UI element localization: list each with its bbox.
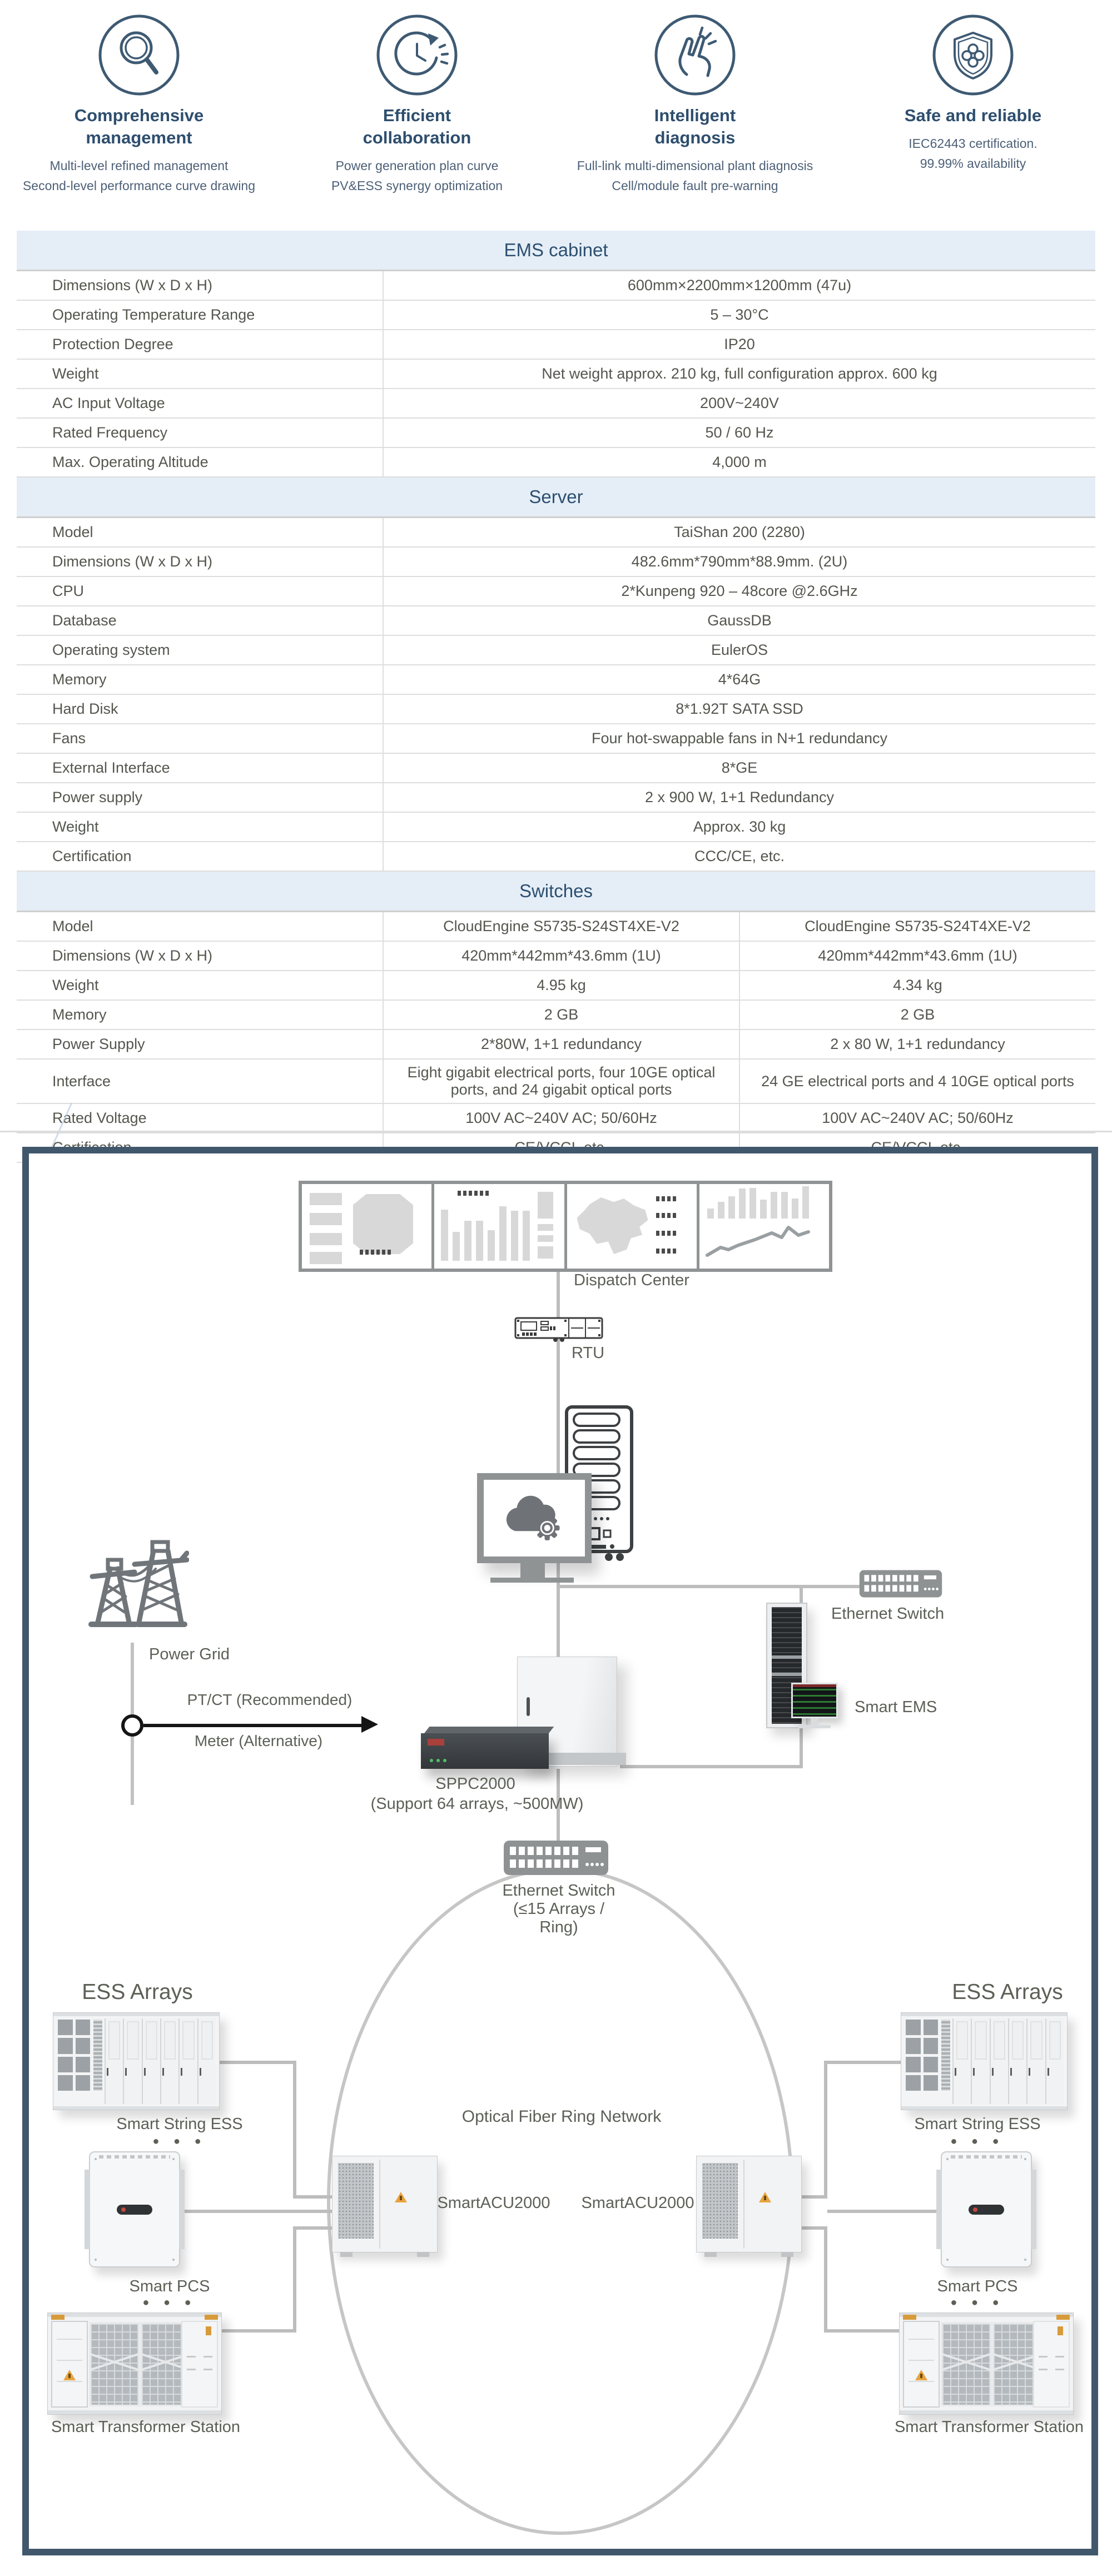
spec-value: 8*1.92T SATA SSD bbox=[384, 695, 1095, 723]
ellipsis-right-1: ● ● ● bbox=[894, 2135, 1061, 2148]
feature-subtitle: Power generation plan curvePV&ESS synerg… bbox=[331, 156, 503, 196]
ess-arrays-right-heading: ESS Arrays bbox=[924, 1983, 1091, 2001]
spec-row: Hard Disk8*1.92T SATA SSD bbox=[17, 695, 1095, 724]
spec-label: Hard Disk bbox=[17, 695, 384, 723]
spec-label: Operating Temperature Range bbox=[17, 301, 384, 329]
meter-arrow-line bbox=[143, 1724, 364, 1727]
spec-row: Rated Frequency50 / 60 Hz bbox=[17, 419, 1095, 448]
spec-value: 4.95 kg bbox=[384, 971, 739, 999]
spec-value: CloudEngine S5735-S24T4XE-V2 bbox=[739, 912, 1095, 941]
spec-row: WeightNet weight approx. 210 kg, full co… bbox=[17, 360, 1095, 389]
spec-value: 420mm*442mm*43.6mm (1U) bbox=[384, 942, 739, 970]
feature-title: Safe and reliable bbox=[905, 105, 1041, 127]
spec-row: DatabaseGaussDB bbox=[17, 606, 1095, 636]
right-trunk-lower bbox=[824, 2230, 827, 2333]
spec-value: Eight gigabit electrical ports, four 10G… bbox=[384, 1060, 739, 1103]
spec-label: Model bbox=[17, 518, 384, 546]
wall-panel-trend bbox=[697, 1184, 829, 1269]
feature-efficient-collaboration: Efficientcollaboration Power generation … bbox=[278, 13, 556, 196]
spec-value: 2 GB bbox=[739, 1001, 1095, 1029]
spec-value: Four hot-swappable fans in N+1 redundanc… bbox=[384, 724, 1095, 753]
table-title-switches: Switches bbox=[17, 872, 1095, 912]
smart-string-ess-left-label: Smart String ESS bbox=[96, 2115, 263, 2134]
spec-label: Interface bbox=[17, 1060, 384, 1103]
ethernet-switch-top-label: Ethernet Switch bbox=[831, 1605, 970, 1623]
smart-pcs-left-label: Smart PCS bbox=[86, 2277, 253, 2296]
topology-diagram: Dispatch Center RTU bbox=[22, 1147, 1098, 2555]
ethernet-switch-icon bbox=[859, 1569, 942, 1598]
ring-ethernet-switch-icon bbox=[503, 1840, 609, 1876]
spec-value: 100V AC~240V AC; 50/60Hz bbox=[384, 1104, 739, 1132]
spec-row: ModelTaiShan 200 (2280) bbox=[17, 518, 1095, 548]
spec-value: 2*80W, 1+1 redundancy bbox=[384, 1030, 739, 1058]
spec-value: 420mm*442mm*43.6mm (1U) bbox=[739, 942, 1095, 970]
management-client-monitor-icon bbox=[477, 1473, 592, 1563]
spec-label: Weight bbox=[17, 813, 384, 841]
acu-right-feed-top bbox=[798, 2195, 827, 2199]
cloud-gear-icon bbox=[498, 1488, 570, 1549]
spec-row: Memory2 GB2 GB bbox=[17, 1001, 1095, 1030]
sppc2000-sublabel: (Support 64 arrays, ~500MW) bbox=[294, 1795, 661, 1813]
ess-right-link bbox=[824, 2061, 902, 2064]
spec-label: Memory bbox=[17, 1001, 384, 1029]
spec-label: Power supply bbox=[17, 783, 384, 812]
feature-subtitle: Multi-level refined managementSecond-lev… bbox=[23, 156, 255, 196]
spec-row: ModelCloudEngine S5735-S24ST4XE-V2CloudE… bbox=[17, 912, 1095, 942]
line-ems-to-sppc bbox=[620, 1765, 803, 1768]
spec-label: Max. Operating Altitude bbox=[17, 448, 384, 476]
spec-row: Memory4*64G bbox=[17, 665, 1095, 695]
smartacu2000-left-label: SmartACU2000 bbox=[427, 2194, 560, 2212]
sppc2000-label: SPPC2000 bbox=[392, 1775, 559, 1793]
spec-row: CPU2*Kunpeng 920 – 48core @2.6GHz bbox=[17, 577, 1095, 606]
spec-label: Fans bbox=[17, 724, 384, 753]
smart-string-ess-right-icon bbox=[901, 2012, 1068, 2110]
spec-row: Rated Voltage100V AC~240V AC; 50/60Hz100… bbox=[17, 1104, 1095, 1133]
smartacu2000-left-icon bbox=[332, 2156, 438, 2252]
spec-value: 4,000 m bbox=[384, 448, 1095, 476]
spec-label: Rated Voltage bbox=[17, 1104, 384, 1132]
transformer-right-label: Smart Transformer Station bbox=[878, 2418, 1100, 2436]
smart-ems-label: Smart EMS bbox=[855, 1698, 937, 1717]
spec-value: IP20 bbox=[384, 330, 1095, 359]
spec-value: 50 / 60 Hz bbox=[384, 419, 1095, 447]
spec-value: TaiShan 200 (2280) bbox=[384, 518, 1095, 546]
spec-value: 2 x 80 W, 1+1 redundancy bbox=[739, 1030, 1095, 1058]
spec-label: Certification bbox=[17, 842, 384, 871]
spec-value: 100V AC~240V AC; 50/60Hz bbox=[739, 1104, 1095, 1132]
feature-row: Comprehensivemanagement Multi-level refi… bbox=[0, 13, 1112, 196]
spec-label: Weight bbox=[17, 360, 384, 388]
acu-left-feed-top bbox=[293, 2195, 335, 2199]
feature-title: Efficientcollaboration bbox=[363, 105, 471, 149]
ring-switch-label: Ethernet Switch (≤15 Arrays / Ring) bbox=[473, 1882, 645, 1937]
ess-left-link bbox=[219, 2061, 296, 2064]
left-trunk-lower bbox=[293, 2230, 296, 2333]
meter-label: Meter (Alternative) bbox=[153, 1732, 364, 1750]
smart-ems-monitor-icon bbox=[791, 1683, 838, 1718]
section-separator bbox=[0, 1131, 1112, 1132]
right-trunk-upper bbox=[824, 2061, 827, 2199]
spec-row: FansFour hot-swappable fans in N+1 redun… bbox=[17, 724, 1095, 754]
spec-row: Max. Operating Altitude4,000 m bbox=[17, 448, 1095, 478]
line-to-ethernet-switch bbox=[558, 1585, 863, 1588]
smart-transformer-station-right-icon bbox=[899, 2313, 1074, 2415]
spec-value: 600mm×2200mm×1200mm (47u) bbox=[384, 271, 1095, 300]
spec-value: Approx. 30 kg bbox=[384, 813, 1095, 841]
spec-tables: EMS cabinet Dimensions (W x D x H)600mm×… bbox=[17, 231, 1095, 1163]
sppc2000-server-icon bbox=[421, 1733, 549, 1769]
ellipsis-left-2: ● ● ● bbox=[86, 2296, 253, 2309]
spec-label: Model bbox=[17, 912, 384, 941]
page: Comprehensivemanagement Multi-level refi… bbox=[0, 0, 1112, 2576]
rtu-label: RTU bbox=[572, 1344, 604, 1362]
transformer-left-label: Smart Transformer Station bbox=[34, 2418, 257, 2436]
spec-row: Operating Temperature Range5 – 30°C bbox=[17, 301, 1095, 330]
spec-row: CertificationCCC/CE, etc. bbox=[17, 842, 1095, 872]
acu-right-feed-bottom bbox=[798, 2226, 827, 2230]
station-right-link bbox=[826, 2329, 899, 2333]
acu-left-feed-bottom bbox=[293, 2226, 335, 2230]
feature-subtitle: IEC62443 certification.99.99% availabili… bbox=[909, 133, 1037, 173]
wall-panel-barchart bbox=[431, 1184, 564, 1269]
spec-value: 2*Kunpeng 920 – 48core @2.6GHz bbox=[384, 577, 1095, 605]
spec-label: Weight bbox=[17, 971, 384, 999]
spec-value: 2 GB bbox=[384, 1001, 739, 1029]
smart-pcs-right-label: Smart PCS bbox=[894, 2277, 1061, 2296]
spec-label: Protection Degree bbox=[17, 330, 384, 359]
spec-value: 24 GE electrical ports and 4 10GE optica… bbox=[739, 1060, 1095, 1103]
spec-label: Memory bbox=[17, 665, 384, 694]
spec-row: Power supply2 x 900 W, 1+1 Redundancy bbox=[17, 783, 1095, 813]
power-grid-towers-icon bbox=[83, 1529, 189, 1629]
feature-safe-reliable: Safe and reliable IEC62443 certification… bbox=[834, 13, 1112, 196]
spec-label: Dimensions (W x D x H) bbox=[17, 942, 384, 970]
feature-comprehensive-management: Comprehensivemanagement Multi-level refi… bbox=[0, 13, 278, 196]
ess-arrays-left-heading: ESS Arrays bbox=[54, 1983, 221, 2001]
rtu-icon bbox=[514, 1316, 603, 1342]
grid-tap-node bbox=[121, 1714, 143, 1737]
spec-value: GaussDB bbox=[384, 606, 1095, 635]
wall-panel-dashboard bbox=[302, 1184, 431, 1269]
spec-value: 200V~240V bbox=[384, 389, 1095, 417]
efficiency-clock-icon bbox=[375, 13, 459, 97]
spec-value: 4.34 kg bbox=[739, 971, 1095, 999]
spec-label: Power Supply bbox=[17, 1030, 384, 1058]
smart-ems-monitor-base bbox=[798, 1725, 831, 1728]
spec-row: Protection DegreeIP20 bbox=[17, 330, 1095, 360]
spec-value: 2 x 900 W, 1+1 Redundancy bbox=[384, 783, 1095, 812]
spec-label: CPU bbox=[17, 577, 384, 605]
shield-icon bbox=[931, 13, 1015, 97]
smart-string-ess-left-icon bbox=[53, 2012, 220, 2110]
spec-row: InterfaceEight gigabit electrical ports,… bbox=[17, 1060, 1095, 1104]
spec-value: 4*64G bbox=[384, 665, 1095, 694]
spec-value: CloudEngine S5735-S24ST4XE-V2 bbox=[384, 912, 739, 941]
feature-intelligent-diagnosis: Intelligentdiagnosis Full-link multi-dim… bbox=[556, 13, 834, 196]
table-title-server: Server bbox=[17, 478, 1095, 518]
ring-network-label: Optical Fiber Ring Network bbox=[395, 2107, 728, 2126]
spec-label: Operating system bbox=[17, 636, 384, 664]
smartacu2000-right-label: SmartACU2000 bbox=[571, 2194, 704, 2212]
smart-pcs-left-icon bbox=[89, 2151, 180, 2267]
power-grid-label: Power Grid bbox=[149, 1645, 230, 1664]
smartacu2000-right-icon bbox=[696, 2156, 802, 2252]
smart-transformer-station-left-icon bbox=[47, 2313, 222, 2415]
spec-label: External Interface bbox=[17, 754, 384, 782]
wall-panel-map bbox=[564, 1184, 697, 1269]
feature-title: Comprehensivemanagement bbox=[75, 105, 204, 149]
spec-row: Power Supply2*80W, 1+1 redundancy2 x 80 … bbox=[17, 1030, 1095, 1060]
spec-value: EulerOS bbox=[384, 636, 1095, 664]
line-chart-glyph bbox=[704, 1223, 815, 1262]
spec-value: 482.6mm*790mm*88.9mm. (2U) bbox=[384, 548, 1095, 576]
magnifier-icon bbox=[97, 13, 181, 97]
meter-arrow-head bbox=[361, 1716, 378, 1733]
spec-label: AC Input Voltage bbox=[17, 389, 384, 417]
spec-value: CCC/CE, etc. bbox=[384, 842, 1095, 871]
ptct-label: PT/CT (Recommended) bbox=[164, 1690, 375, 1709]
stub-to-ems-rack bbox=[800, 1585, 803, 1605]
monitor-base bbox=[490, 1578, 574, 1583]
smart-string-ess-right-label: Smart String ESS bbox=[894, 2115, 1061, 2134]
monitor-stand bbox=[520, 1563, 545, 1578]
spec-row: AC Input Voltage200V~240V bbox=[17, 389, 1095, 419]
server-table: Server ModelTaiShan 200 (2280)Dimensions… bbox=[17, 478, 1095, 872]
station-left-link bbox=[220, 2329, 296, 2333]
spec-row: Operating systemEulerOS bbox=[17, 636, 1095, 665]
ems-cabinet-table: EMS cabinet Dimensions (W x D x H)600mm×… bbox=[17, 231, 1095, 478]
feature-title: Intelligentdiagnosis bbox=[654, 105, 736, 149]
smart-pcs-right-icon bbox=[941, 2151, 1032, 2267]
dispatch-center-label: Dispatch Center bbox=[574, 1271, 689, 1290]
smart-ems-monitor-stand bbox=[811, 1718, 818, 1725]
spec-value: Net weight approx. 210 kg, full configur… bbox=[384, 360, 1095, 388]
feature-subtitle: Full-link multi-dimensional plant diagno… bbox=[577, 156, 813, 196]
snap-finger-icon bbox=[653, 13, 737, 97]
spec-label: Database bbox=[17, 606, 384, 635]
table-title-ems: EMS cabinet bbox=[17, 231, 1095, 271]
spec-row: External Interface8*GE bbox=[17, 754, 1095, 783]
spec-row: WeightApprox. 30 kg bbox=[17, 813, 1095, 842]
spec-row: Weight4.95 kg4.34 kg bbox=[17, 971, 1095, 1001]
spec-label: Rated Frequency bbox=[17, 419, 384, 447]
spec-value: 5 – 30°C bbox=[384, 301, 1095, 329]
stub-from-ems-rack bbox=[800, 1728, 803, 1767]
spec-row: Dimensions (W x D x H)420mm*442mm*43.6mm… bbox=[17, 942, 1095, 971]
dispatch-video-wall-icon bbox=[299, 1181, 832, 1272]
spec-value: 8*GE bbox=[384, 754, 1095, 782]
spec-row: Dimensions (W x D x H)482.6mm*790mm*88.9… bbox=[17, 548, 1095, 577]
spec-label: Dimensions (W x D x H) bbox=[17, 271, 384, 300]
left-trunk-upper bbox=[293, 2061, 296, 2199]
switches-table: Switches ModelCloudEngine S5735-S24ST4XE… bbox=[17, 872, 1095, 1163]
spec-row: Dimensions (W x D x H)600mm×2200mm×1200m… bbox=[17, 271, 1095, 301]
ellipsis-right-2: ● ● ● bbox=[894, 2296, 1061, 2309]
spec-label: Dimensions (W x D x H) bbox=[17, 548, 384, 576]
ellipsis-left-1: ● ● ● bbox=[96, 2135, 263, 2148]
pcs-left-link bbox=[177, 2210, 335, 2213]
pcs-right-link bbox=[827, 2210, 941, 2213]
